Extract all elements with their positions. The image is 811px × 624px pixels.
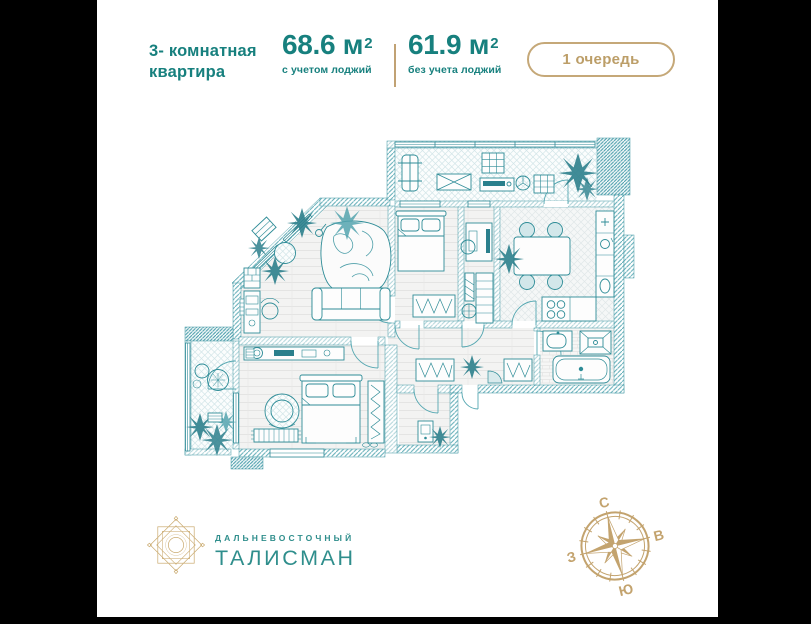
compass-south-label: Ю [617,580,635,599]
logo-star-ornament [147,516,204,573]
compass-rose: С В Ю З [563,490,667,604]
plan-card: 3- комнатная квартира 68.6 м2 с учетом л… [97,0,718,617]
company-logo-text: ДАЛЬНЕВОСТОЧНЫЙ ТАЛИСМАН [215,533,356,571]
company-logo-star [147,516,205,574]
compass-star [577,508,652,583]
header-divider [394,44,396,87]
area-with-loggia-label: с учетом лоджий [282,64,372,76]
company-name-small: ДАЛЬНЕВОСТОЧНЫЙ [215,533,356,543]
compass-north-label: С [597,493,611,511]
compass-east-label: В [652,526,666,544]
area-sup: 2 [364,35,372,52]
area-with-loggia: 68.6 м2 с учетом лоджий [282,30,372,76]
area-with-loggia-value: 68.6 м2 [282,30,372,61]
area-value-text: 68.6 м [282,29,363,60]
floor-plan-drawing [182,131,642,481]
area-without-loggia: 61.9 м2 без учета лоджий [408,30,501,76]
phase-badge[interactable]: 1 очередь [527,42,675,77]
area-sup: 2 [490,35,498,52]
apartment-type: 3- комнатная квартира [149,41,269,84]
company-name-large: ТАЛИСМАН [215,546,356,571]
area-without-loggia-label: без учета лоджий [408,64,501,76]
compass-west-label: З [565,548,578,566]
area-value-text: 61.9 м [408,29,489,60]
page: { "header": { "apartment_type": "3- комн… [0,0,811,624]
area-without-loggia-value: 61.9 м2 [408,30,501,61]
